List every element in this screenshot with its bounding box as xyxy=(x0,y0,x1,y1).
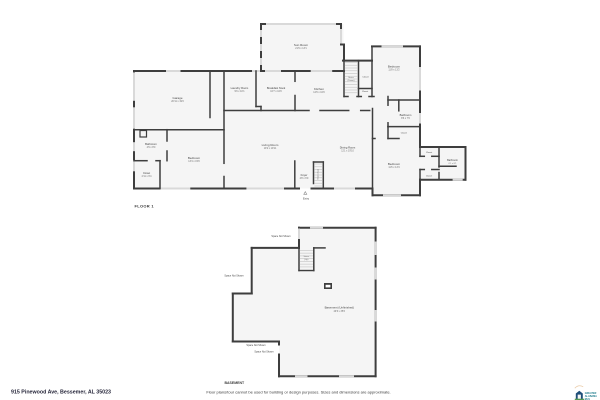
svg-text:4'11 x 6'4: 4'11 x 6'4 xyxy=(142,175,153,178)
svg-text:10'7 x 10'0: 10'7 x 10'0 xyxy=(270,90,282,93)
svg-text:Floor plans/tour cannot be use: Floor plans/tour cannot be used for buil… xyxy=(206,389,390,394)
svg-text:Space Not Shown: Space Not Shown xyxy=(246,344,266,347)
svg-text:11'8 x 13'2: 11'8 x 13'2 xyxy=(388,69,400,72)
svg-text:(Down): (Down) xyxy=(347,80,354,82)
svg-text:20'11 x 19'0: 20'11 x 19'0 xyxy=(171,100,184,103)
svg-text:Stairs: Stairs xyxy=(304,255,310,258)
svg-text:4'8 x 6'9: 4'8 x 6'9 xyxy=(300,177,309,180)
svg-text:Entry: Entry xyxy=(303,196,310,200)
svg-text:Closet: Closet xyxy=(426,175,433,178)
svg-text:9'9 x 10'1: 9'9 x 10'1 xyxy=(234,90,245,93)
svg-text:11'6 x 13'4: 11'6 x 13'4 xyxy=(388,166,400,169)
svg-text:Closet: Closet xyxy=(362,76,369,79)
svg-text:915 Pinewood Ave, Bessemer, AL: 915 Pinewood Ave, Bessemer, AL 35023 xyxy=(11,390,111,396)
svg-text:8'6 x 7'6: 8'6 x 7'6 xyxy=(401,117,410,120)
svg-text:11'1 x 19'10: 11'1 x 19'10 xyxy=(341,150,354,153)
svg-text:(Up): (Up) xyxy=(304,259,309,261)
svg-text:Closet: Closet xyxy=(362,90,369,93)
svg-text:19'2 x 19'11: 19'2 x 19'11 xyxy=(264,147,277,150)
svg-text:Stairs: Stairs xyxy=(348,76,354,79)
svg-text:12'6 x 10'0: 12'6 x 10'0 xyxy=(313,91,325,94)
svg-text:6'1 x 8'1: 6'1 x 8'1 xyxy=(448,163,457,165)
svg-text:Closet: Closet xyxy=(401,132,408,135)
svg-text:Stairs (Up): Stairs (Up) xyxy=(317,169,320,180)
svg-text:29'6 x 35'6: 29'6 x 35'6 xyxy=(334,310,346,313)
svg-text:Closet: Closet xyxy=(426,151,433,154)
svg-text:Space Not Shown: Space Not Shown xyxy=(254,351,274,354)
svg-text:Bathroom: Bathroom xyxy=(447,159,458,162)
svg-text:Space Not Shown: Space Not Shown xyxy=(271,235,291,238)
svg-text:21'9 x 13'1: 21'9 x 13'1 xyxy=(295,47,307,50)
svg-text:4'9 x 8'0: 4'9 x 8'0 xyxy=(147,146,156,149)
svg-text:Space Not Shown: Space Not Shown xyxy=(224,275,244,278)
svg-text:13'4 x 15'0: 13'4 x 15'0 xyxy=(188,160,200,163)
svg-text:BASEMENT: BASEMENT xyxy=(225,381,246,385)
svg-text:FLOOR 1: FLOOR 1 xyxy=(135,204,155,209)
